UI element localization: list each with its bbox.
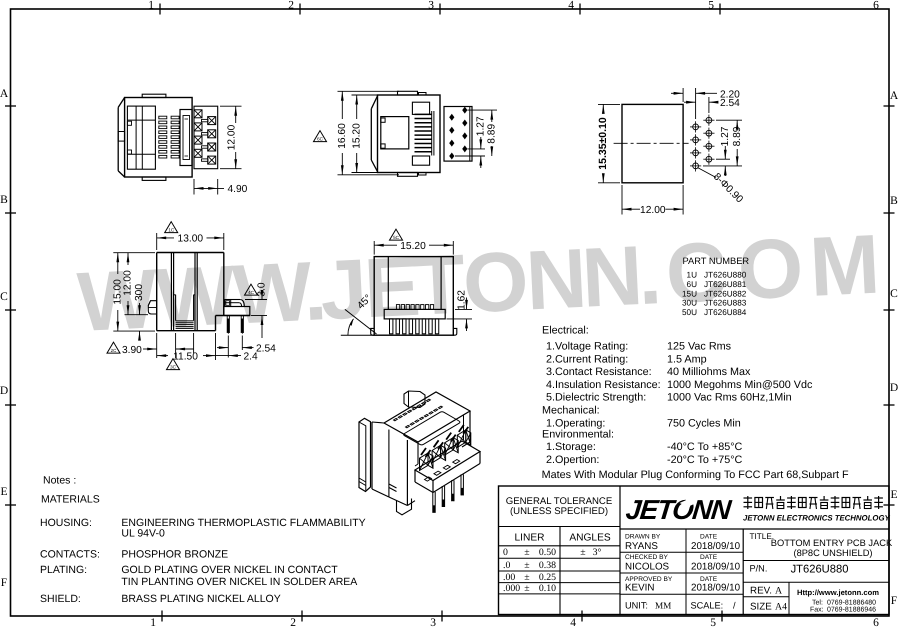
svg-text:1C: 1C — [168, 227, 175, 232]
svg-text:JT626U884: JT626U884 — [704, 308, 747, 317]
svg-text:Mechanical:: Mechanical: — [542, 405, 600, 417]
svg-text:5.Dielectric Strength:: 5.Dielectric Strength: — [546, 392, 646, 404]
svg-text:±: ± — [524, 572, 529, 583]
svg-text:E: E — [0, 486, 7, 498]
svg-text:-20°C To +75°C: -20°C To +75°C — [667, 454, 743, 466]
svg-text:HOUSING:: HOUSING: — [40, 517, 92, 529]
svg-text:1U: 1U — [687, 271, 698, 280]
svg-text:±: ± — [524, 560, 529, 571]
svg-text:1.Operating:: 1.Operating: — [546, 417, 605, 429]
svg-text:KEVIN: KEVIN — [625, 583, 654, 594]
svg-text:6C: 6C — [317, 136, 324, 141]
svg-text:1.5 Amp: 1.5 Amp — [667, 354, 707, 366]
svg-text:3.0: 3.0 — [257, 282, 268, 296]
svg-text:BOTTOM ENTRY PCB JACK: BOTTOM ENTRY PCB JACK — [771, 538, 893, 548]
svg-text:5: 5 — [708, 0, 714, 12]
svg-text:B: B — [0, 194, 8, 206]
svg-text:C: C — [0, 291, 8, 303]
svg-text:C: C — [890, 288, 898, 300]
svg-text:15.35±0.10: 15.35±0.10 — [597, 117, 609, 170]
svg-text:15.20: 15.20 — [400, 241, 426, 252]
svg-text:13.00: 13.00 — [178, 234, 204, 245]
svg-text:LINER: LINER — [514, 533, 544, 544]
svg-text:1000 Vac Rms 60Hz,1Min: 1000 Vac Rms 60Hz,1Min — [667, 392, 792, 404]
svg-text:±: ± — [580, 547, 585, 558]
svg-text:3C: 3C — [170, 364, 177, 369]
svg-text:PHOSPHOR BRONZE: PHOSPHOR BRONZE — [121, 549, 228, 561]
svg-text:15.20: 15.20 — [351, 123, 362, 149]
svg-text:.0: .0 — [503, 560, 510, 571]
svg-text:4: 4 — [568, 0, 574, 12]
svg-text:Electrical:: Electrical: — [542, 325, 589, 337]
svg-text:11.50: 11.50 — [173, 351, 198, 362]
svg-text:MM: MM — [655, 601, 671, 611]
svg-text:2.Opertion:: 2.Opertion: — [546, 454, 599, 466]
svg-text:2.54: 2.54 — [720, 98, 740, 109]
svg-text:SIZE: SIZE — [750, 602, 772, 613]
svg-text:Tel:: Tel: — [812, 599, 823, 607]
svg-text:4C: 4C — [248, 290, 255, 295]
svg-text:6U: 6U — [687, 280, 698, 289]
svg-text:0.38: 0.38 — [539, 560, 556, 571]
svg-text:GOLD PLATING OVER NICKEL IN CO: GOLD PLATING OVER NICKEL IN CONTACT — [121, 564, 338, 576]
svg-text:12.00: 12.00 — [123, 270, 134, 296]
svg-text:A: A — [890, 90, 899, 102]
svg-text:50U: 50U — [682, 308, 697, 317]
svg-text:4.90: 4.90 — [228, 184, 248, 195]
svg-text:RYANS: RYANS — [625, 541, 658, 552]
svg-text:E: E — [890, 489, 897, 501]
svg-text:REV.: REV. — [750, 586, 772, 597]
svg-text:UL 94V-0: UL 94V-0 — [121, 528, 165, 540]
svg-text:1.Voltage Rating:: 1.Voltage Rating: — [546, 341, 628, 353]
svg-text:DATE: DATE — [700, 533, 718, 540]
svg-text:PART NUMBER: PART NUMBER — [683, 256, 750, 266]
svg-text:1.Storage:: 1.Storage: — [546, 441, 596, 453]
svg-text:D: D — [0, 385, 8, 397]
svg-text:Notes :: Notes : — [43, 474, 76, 486]
svg-text:0.10: 0.10 — [539, 583, 556, 594]
svg-text:2: 2 — [288, 0, 294, 12]
svg-text:A: A — [0, 88, 9, 100]
svg-text:/: / — [733, 601, 736, 611]
svg-text:4: 4 — [570, 617, 576, 627]
svg-text:-40°C To +85°C: -40°C To +85°C — [667, 441, 743, 453]
svg-text:Mates With Modular Plug Confor: Mates With Modular Plug Conforming To FC… — [542, 469, 849, 481]
svg-text:PLATING:: PLATING: — [40, 564, 87, 576]
svg-text:4.Insulation Resistance:: 4.Insulation Resistance: — [546, 379, 661, 391]
svg-text:3.Contact Resistance:: 3.Contact Resistance: — [546, 366, 652, 378]
svg-text:MATERIALS: MATERIALS — [41, 494, 100, 506]
svg-text:B: B — [890, 195, 898, 207]
svg-text:DRAWN BY: DRAWN BY — [625, 533, 661, 540]
svg-text:±: ± — [524, 583, 529, 594]
svg-text:300: 300 — [134, 284, 145, 301]
svg-text:TIN PLANTING OVER NICKEL IN SO: TIN PLANTING OVER NICKEL IN SOLDER AREA — [121, 576, 357, 588]
svg-text:(UNLESS SPECIFIED): (UNLESS SPECIFIED) — [510, 506, 608, 517]
svg-text:Environmental:: Environmental: — [542, 429, 614, 441]
svg-text:12.00: 12.00 — [227, 124, 238, 150]
svg-text:40 Milliohms Max: 40 Milliohms Max — [667, 366, 751, 378]
svg-text:UNIT:: UNIT: — [625, 601, 648, 611]
svg-text:2.54: 2.54 — [256, 343, 276, 354]
svg-text:30U: 30U — [682, 299, 697, 308]
svg-text:SHIELD:: SHIELD: — [40, 593, 81, 605]
svg-text:2.4: 2.4 — [244, 351, 258, 362]
svg-text:0.50: 0.50 — [539, 547, 556, 558]
svg-text:SCALE:: SCALE: — [691, 601, 724, 611]
svg-text:(8P8C UNSHIELD): (8P8C UNSHIELD) — [793, 548, 872, 558]
svg-text:A: A — [775, 586, 782, 597]
svg-text:1.27: 1.27 — [476, 116, 487, 136]
svg-text:2: 2 — [290, 617, 296, 627]
svg-text:DATE: DATE — [700, 554, 718, 561]
svg-text:±: ± — [524, 547, 529, 558]
svg-text:JETONN: JETONN — [624, 494, 733, 525]
svg-text:1000 Megohms Min@500 Vdc: 1000 Megohms Min@500 Vdc — [667, 379, 813, 391]
svg-text:2018/09/10: 2018/09/10 — [691, 541, 741, 552]
svg-text:BRASS PLATING NICKEL ALLOY: BRASS PLATING NICKEL ALLOY — [121, 593, 280, 605]
svg-text:P/N.: P/N. — [750, 564, 768, 574]
svg-text:5: 5 — [710, 617, 716, 627]
svg-text:JT626U881: JT626U881 — [704, 280, 747, 289]
svg-text:2.Current Rating:: 2.Current Rating: — [546, 354, 628, 366]
svg-text:1.62: 1.62 — [457, 290, 468, 310]
svg-text:Fax:: Fax: — [810, 606, 824, 613]
svg-text:3: 3 — [430, 617, 436, 627]
svg-text:F: F — [891, 595, 897, 607]
svg-text:0: 0 — [503, 547, 508, 558]
svg-text:1: 1 — [148, 0, 154, 12]
svg-text:F: F — [1, 577, 7, 589]
svg-text:D: D — [890, 382, 898, 394]
svg-text:2018/09/10: 2018/09/10 — [691, 562, 741, 573]
svg-text:8.89: 8.89 — [732, 126, 743, 146]
svg-text:0769-81886946: 0769-81886946 — [827, 606, 876, 613]
svg-text:NICOLOS: NICOLOS — [625, 562, 670, 573]
svg-text:2018/09/10: 2018/09/10 — [691, 583, 741, 594]
svg-text:125 Vac Rms: 125 Vac Rms — [667, 341, 732, 353]
svg-text:.00: .00 — [503, 572, 515, 583]
svg-text:CONTACTS:: CONTACTS: — [40, 549, 100, 561]
svg-text:3°: 3° — [593, 547, 602, 558]
svg-text:3: 3 — [428, 0, 434, 12]
svg-text:Http://www.jetonn.com: Http://www.jetonn.com — [797, 588, 879, 597]
svg-text:JT626U880: JT626U880 — [791, 564, 849, 576]
svg-text:1.27: 1.27 — [720, 126, 731, 146]
svg-text:JT626U880: JT626U880 — [704, 271, 747, 280]
svg-text:6: 6 — [873, 0, 879, 12]
svg-text:CHECKED BY: CHECKED BY — [625, 554, 668, 561]
svg-text:6: 6 — [873, 617, 879, 627]
svg-text:15U: 15U — [682, 289, 697, 298]
svg-text:0.25: 0.25 — [539, 572, 556, 583]
svg-text:5C: 5C — [393, 235, 400, 240]
svg-text:.000: .000 — [503, 583, 520, 594]
svg-text:ANGLES: ANGLES — [569, 533, 611, 544]
svg-text:16.60: 16.60 — [337, 123, 348, 149]
svg-text:750 Cycles Min: 750 Cycles Min — [667, 417, 741, 429]
svg-text:JETONN ELECTRONICS TECHNOLOGY: JETONN ELECTRONICS TECHNOLOGY — [743, 514, 891, 523]
svg-text:2C: 2C — [111, 348, 118, 353]
svg-text:1: 1 — [150, 617, 156, 627]
svg-text:JT626U883: JT626U883 — [704, 299, 747, 308]
svg-text:A4: A4 — [775, 602, 787, 613]
svg-text:JT626U882: JT626U882 — [704, 289, 747, 298]
svg-text:3.90: 3.90 — [122, 345, 142, 356]
svg-text:8.89: 8.89 — [486, 124, 497, 144]
svg-text:12.00: 12.00 — [640, 205, 666, 216]
